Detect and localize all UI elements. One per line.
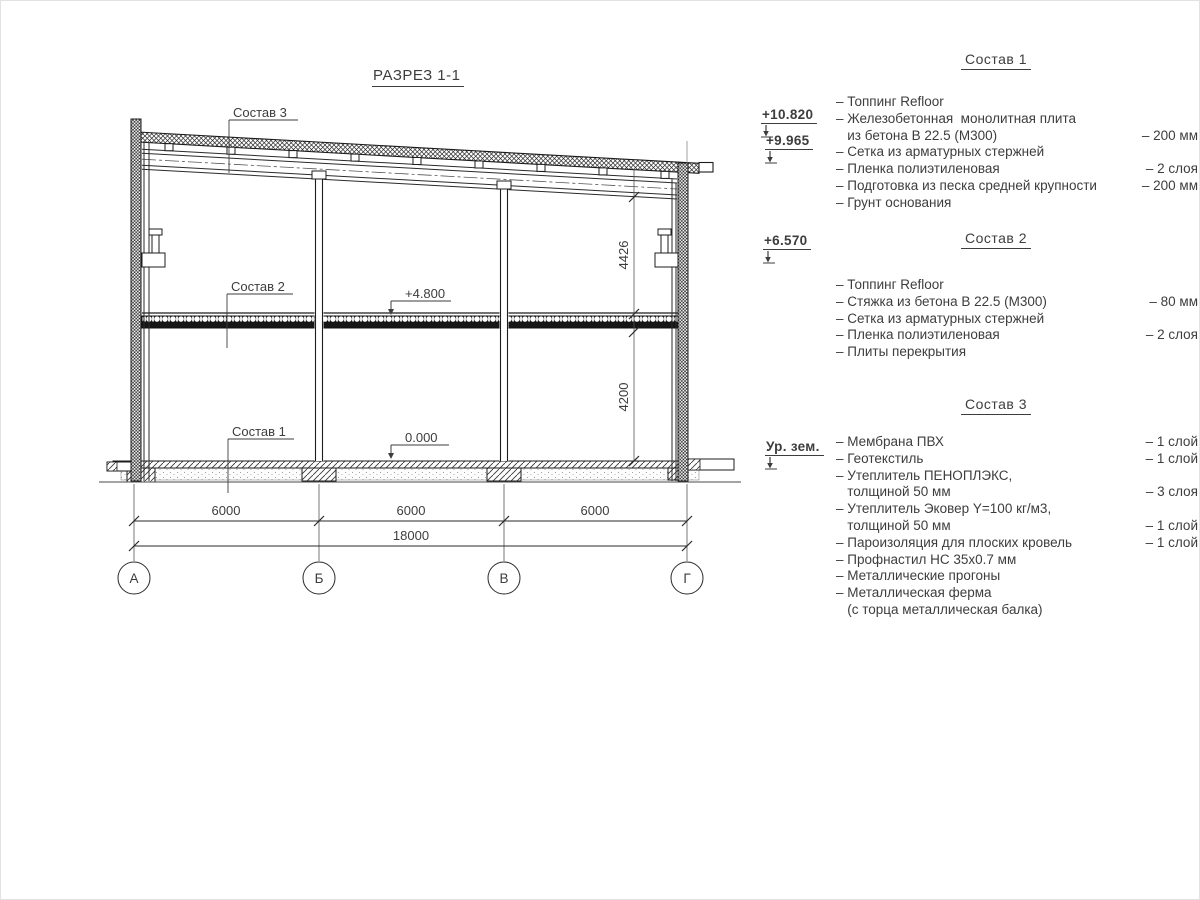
layer-text: – Грунт основания (836, 195, 951, 212)
composition-item: – Топпинг Refloor (836, 277, 1198, 294)
layer-text: – Плиты перекрытия (836, 344, 966, 361)
elevation-mark-corbel: +6.570 (763, 233, 811, 264)
footing-b (302, 468, 336, 481)
level-mark-mid: +4.800 (388, 286, 451, 315)
roof-end-cap (699, 163, 713, 173)
elevation-mark-ground-level: Ур. зем. (765, 439, 824, 470)
composition-item: – Топпинг Refloor (836, 94, 1198, 111)
composition-item: – Плиты перекрытия (836, 344, 1198, 361)
composition-item: – Утеплитель Эковер Y=100 кг/м3, толщино… (836, 501, 1198, 535)
layer-value: – 1 слой (1140, 518, 1198, 535)
composition-item: – Сетка из арматурных стержней (836, 311, 1198, 328)
dim-bay2: 6000 (397, 503, 426, 518)
grid-axis-g: Г (683, 571, 691, 586)
corbel-left (142, 229, 165, 267)
corbel-right (655, 229, 678, 267)
layer-text: – Стяжка из бетона В 22.5 (М300) (836, 294, 1047, 311)
composition-item: – Сетка из арматурных стержней (836, 144, 1198, 161)
layer-value: – 1 слой (1140, 451, 1198, 468)
composition-item: – Мембрана ПВХ – 1 слой (836, 434, 1198, 451)
composition-item: – Подготовка из песка средней крупности … (836, 178, 1198, 195)
down-arrow-icon (765, 457, 781, 470)
composition-list-3: Состав 3 – Мембрана ПВХ – 1 слой – Геоте… (836, 396, 1198, 619)
dim-total: 18000 (393, 528, 429, 543)
grid-axis-a: А (129, 571, 138, 586)
layer-text: – Подготовка из песка средней крупности (836, 178, 1097, 195)
layer-value: – 2 слоя (1140, 327, 1198, 344)
svg-text:+4.800: +4.800 (405, 286, 445, 301)
layer-text: – Мембрана ПВХ (836, 434, 944, 451)
layer-text: – Металлические прогоны (836, 568, 1000, 585)
composition-2-title: Состав 2 (836, 230, 1156, 249)
right-wall (672, 141, 688, 481)
dimension-row-bays: 6000 6000 6000 (129, 503, 692, 526)
layer-value: – 200 мм (1136, 128, 1198, 145)
svg-text:0.000: 0.000 (405, 430, 438, 445)
layer-text: – Пароизоляция для плоских кровель (836, 535, 1072, 552)
svg-text:Состав 1: Состав 1 (232, 424, 286, 439)
down-arrow-icon (765, 151, 781, 164)
dim-bay3: 6000 (581, 503, 610, 518)
layer-text: – Профнастил НС 35х0.7 мм (836, 552, 1016, 569)
ground-base (99, 459, 741, 482)
layer-text: – Геотекстиль (836, 451, 923, 468)
composition-item: – Стяжка из бетона В 22.5 (М300) – 80 мм (836, 294, 1198, 311)
composition-item: – Пленка полиэтиленовая – 2 слоя (836, 161, 1198, 178)
layer-value: – 80 мм (1143, 294, 1198, 311)
grid-extension-lines (134, 484, 687, 561)
composition-1-title: Состав 1 (836, 51, 1156, 70)
left-wall (131, 119, 149, 481)
composition-list-2: Состав 2 – Топпинг Refloor – Стяжка из б… (836, 230, 1198, 361)
level-mark-zero: 0.000 (388, 430, 449, 459)
down-arrow-icon (763, 251, 779, 264)
layer-value: – 2 слоя (1140, 161, 1198, 178)
layer-text: – Железобетонная монолитная плита из бет… (836, 111, 1076, 145)
layer-value: – 3 слоя (1140, 484, 1198, 501)
layer-text: – Топпинг Refloor (836, 94, 944, 111)
dim-bay1: 6000 (212, 503, 241, 518)
svg-text:Состав 3: Состав 3 (233, 105, 287, 120)
composition-item: – Грунт основания (836, 195, 1198, 212)
composition-1-items: – Топпинг Refloor – Железобетонная монол… (836, 94, 1198, 212)
layer-text: – Сетка из арматурных стержней (836, 144, 1044, 161)
roof (138, 132, 713, 173)
layer-value: – 1 слой (1140, 535, 1198, 552)
composition-item: – Железобетонная монолитная плита из бет… (836, 111, 1198, 145)
composition-3-items: – Мембрана ПВХ – 1 слой – Геотекстиль – … (836, 434, 1198, 619)
composition-3-title: Состав 3 (836, 396, 1156, 415)
composition-item: – Металлические прогоны (836, 568, 1198, 585)
composition-item: – Металлическая ферма (с торца металличе… (836, 585, 1198, 619)
layer-value: – 1 слой (1140, 434, 1198, 451)
composition-item: – Геотекстиль – 1 слой (836, 451, 1198, 468)
section-drawing: Состав 3 Состав 2 Состав 1 +4.800 0.000 (1, 1, 761, 661)
layer-text: – Металлическая ферма (с торца металличе… (836, 585, 1043, 619)
composition-item: – Пароизоляция для плоских кровель – 1 с… (836, 535, 1198, 552)
composition-item: – Пленка полиэтиленовая – 2 слоя (836, 327, 1198, 344)
composition-item: – Утеплитель ПЕНОПЛЭКС, толщиной 50 мм –… (836, 468, 1198, 502)
layer-value: – 200 мм (1136, 178, 1198, 195)
dimension-row-total: 18000 (129, 528, 692, 551)
composition-list-1: Состав 1 – Топпинг Refloor – Железобетон… (836, 51, 1198, 212)
layer-text: – Топпинг Refloor (836, 277, 944, 294)
layer-text: – Пленка полиэтиленовая (836, 327, 1000, 344)
leader-sostav-1: Состав 1 (228, 424, 294, 493)
svg-text:Состав 2: Состав 2 (231, 279, 285, 294)
layer-text: – Пленка полиэтиленовая (836, 161, 1000, 178)
layer-text: – Сетка из арматурных стержней (836, 311, 1044, 328)
middle-slab (142, 313, 678, 328)
composition-item: – Профнастил НС 35х0.7 мм (836, 552, 1198, 569)
dim-upper-height: 4426 (616, 241, 631, 270)
dim-lower-height: 4200 (616, 383, 631, 412)
grid-axis-b: Б (315, 571, 324, 586)
elevation-mark-roof-low: +9.965 (765, 133, 813, 164)
composition-2-items: – Топпинг Refloor – Стяжка из бетона В 2… (836, 277, 1198, 361)
layer-text: – Утеплитель ПЕНОПЛЭКС, толщиной 50 мм (836, 468, 1012, 502)
footing-v (487, 468, 521, 481)
drawing-sheet: РАЗРЕЗ 1-1 (0, 0, 1200, 900)
grid-axis-v: В (499, 571, 508, 586)
grid-bubbles: А Б В Г (118, 562, 703, 594)
layer-text: – Утеплитель Эковер Y=100 кг/м3, толщино… (836, 501, 1051, 535)
